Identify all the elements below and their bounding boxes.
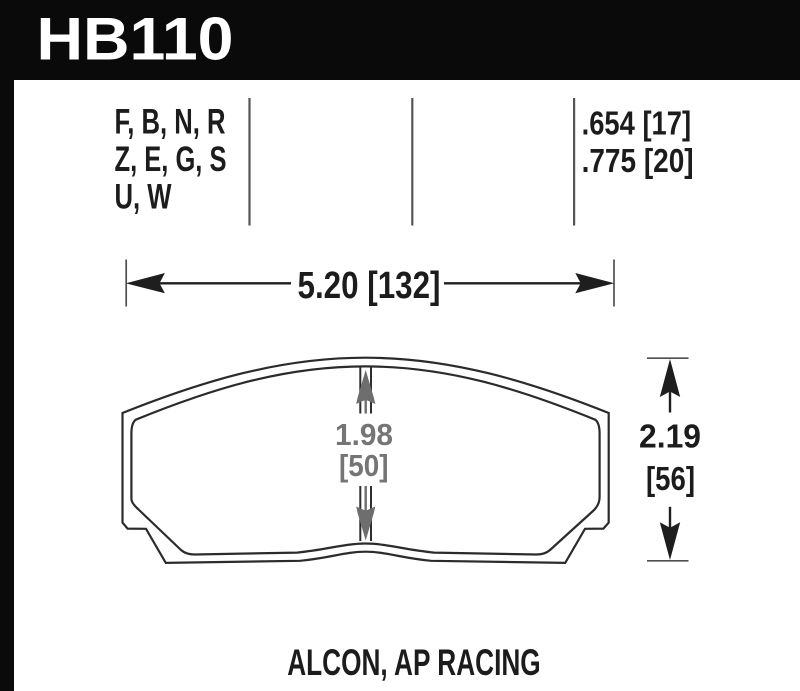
svg-text:.775 [20]: .775 [20] — [582, 143, 694, 180]
svg-text:1.98: 1.98 — [335, 418, 393, 452]
svg-text:ALCON, AP RACING: ALCON, AP RACING — [287, 642, 541, 683]
svg-text:[56]: [56] — [646, 460, 695, 497]
svg-text:U, W: U, W — [115, 178, 172, 217]
svg-text:HB110: HB110 — [37, 6, 234, 73]
svg-text:.654 [17]: .654 [17] — [582, 106, 692, 143]
svg-text:Z, E, G, S: Z, E, G, S — [115, 140, 227, 179]
svg-text:[50]: [50] — [339, 449, 389, 483]
svg-text:2.19: 2.19 — [639, 417, 701, 454]
svg-text:5.20 [132]: 5.20 [132] — [298, 265, 441, 307]
svg-text:F, B, N, R: F, B, N, R — [115, 103, 226, 142]
